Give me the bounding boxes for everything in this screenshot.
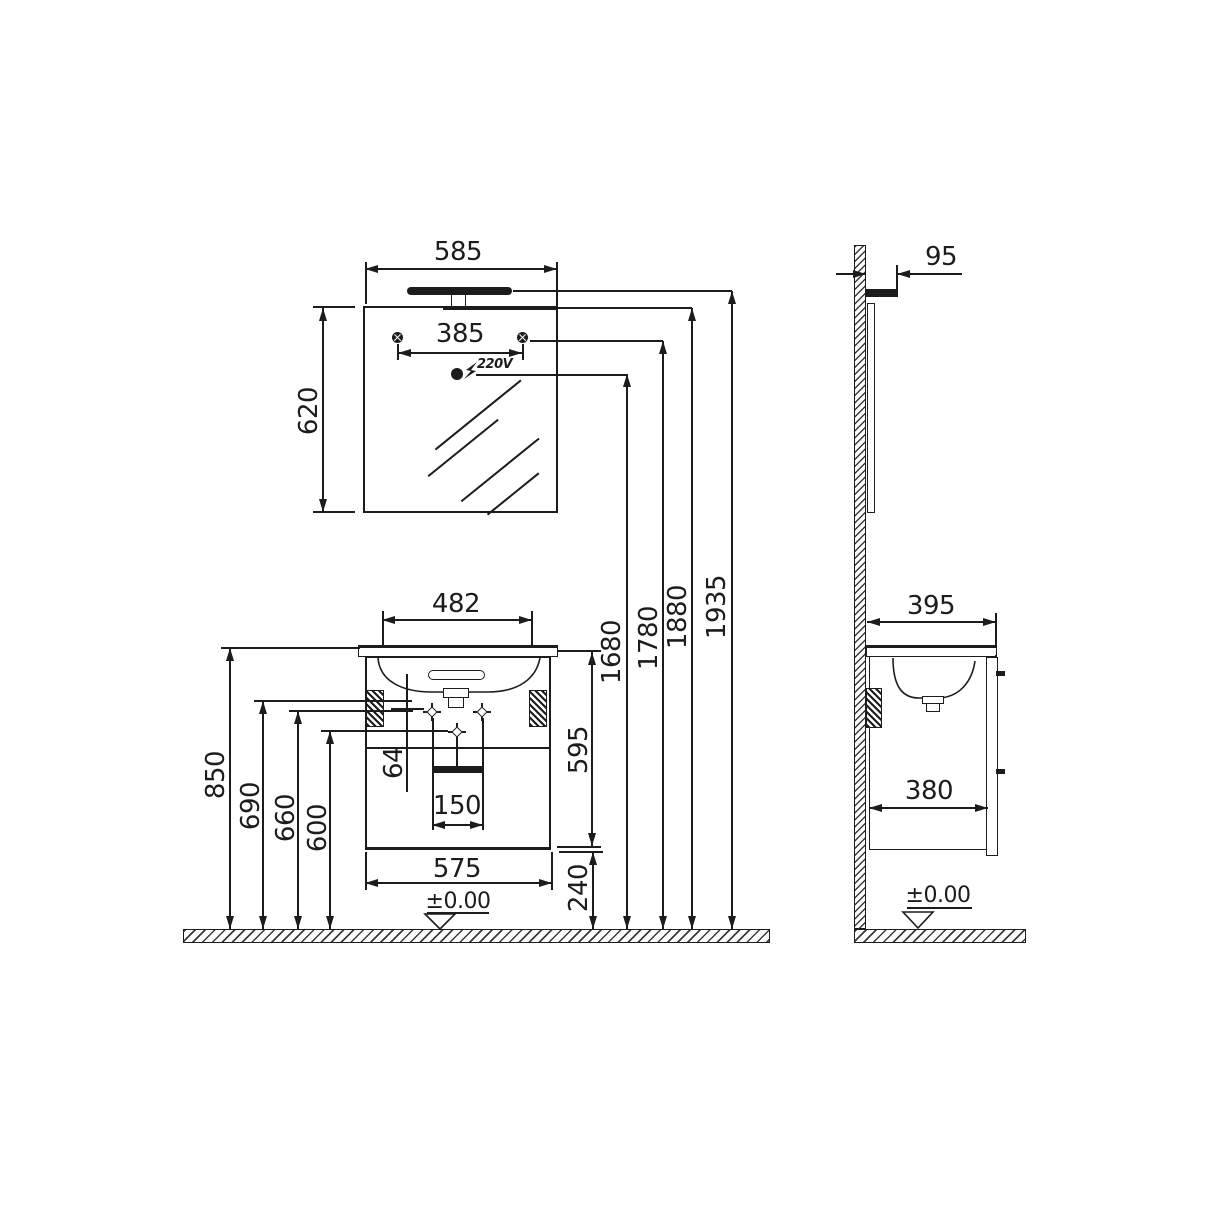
dim-arrow-icon [398, 349, 411, 357]
dim-label-bracket-height-1: 690 [238, 766, 264, 846]
dim-label-mirror-height: 620 [296, 371, 322, 451]
leader-line [321, 730, 448, 732]
wall-bracket-side [866, 688, 882, 728]
ext-line [551, 852, 553, 890]
ext-line [557, 650, 601, 652]
dim-arrow-icon [226, 916, 234, 929]
dim-arrow-icon [688, 916, 696, 929]
ext-line [397, 344, 399, 360]
dim-arrow-icon [588, 652, 596, 665]
dim-label-cabinet-height: 595 [566, 710, 592, 790]
dim-label-light-top-height: 1935 [704, 567, 730, 647]
floor [183, 929, 770, 943]
wall [854, 245, 866, 929]
mirror-screw-icon [517, 332, 528, 343]
dim-line-585 [365, 268, 557, 270]
ext-line [896, 265, 898, 290]
dim-line-385 [398, 352, 522, 354]
leader-line [289, 710, 413, 712]
dim-arrow-icon [588, 833, 596, 846]
leader-line-outlet [476, 374, 627, 376]
leader-line [221, 647, 360, 649]
dim-arrow-icon [432, 821, 445, 829]
dim-line-620 [322, 308, 324, 512]
datum-triangle-icon [424, 913, 456, 930]
dim-arrow-icon [382, 616, 395, 624]
dim-label-mirror-width: 585 [418, 239, 498, 265]
ext-line [313, 511, 355, 513]
dim-arrow-icon [728, 916, 736, 929]
ext-line [313, 306, 355, 308]
dim-label-mirror-top-height: 1880 [665, 577, 691, 657]
dim-label-hole-spacing: 385 [420, 321, 500, 347]
dim-arrow-icon [897, 270, 910, 278]
floor [854, 929, 1026, 943]
dim-label-bracket-height-2: 660 [273, 778, 299, 858]
dim-label-mount-offset: 64 [381, 723, 407, 803]
dim-label-handle-width: 150 [417, 793, 497, 819]
dim-arrow-icon [975, 804, 988, 812]
handle-side [996, 769, 1005, 774]
dim-arrow-icon [365, 879, 378, 887]
dim-arrow-icon [226, 648, 234, 661]
dim-arrow-icon [259, 701, 267, 714]
dim-arrow-icon [326, 916, 334, 929]
dim-arrow-icon [623, 374, 631, 387]
datum-triangle-icon [902, 911, 934, 929]
dim-arrow-icon [509, 349, 522, 357]
wall-bracket [529, 690, 547, 727]
dim-label-holes-height: 1780 [636, 598, 662, 678]
dim-arrow-icon [659, 341, 667, 354]
overflow-slot [428, 670, 485, 680]
drain-hole [448, 697, 464, 708]
datum-underline [907, 907, 972, 909]
power-outlet-icon [451, 368, 463, 380]
dim-label-countertop-depth: 395 [891, 593, 971, 619]
dim-arrow-icon [319, 308, 327, 321]
dim-arrow-icon [728, 291, 736, 304]
handle-side [996, 671, 1005, 676]
mirror-side [867, 303, 875, 513]
dim-arrow-icon [688, 308, 696, 321]
drain-side [926, 703, 940, 712]
ext-line [365, 852, 367, 890]
leader-line-holes [530, 340, 663, 342]
dim-arrow-icon [470, 821, 483, 829]
leader-line-light [513, 290, 732, 292]
outlet-voltage-label: 220V [477, 357, 527, 372]
ext-line [456, 738, 458, 768]
dim-arrow-icon [294, 916, 302, 929]
dim-arrow-icon [623, 916, 631, 929]
ext-line [556, 262, 558, 310]
dim-line-395 [867, 621, 996, 623]
leader-line [254, 700, 412, 702]
dim-arrow-icon [853, 270, 866, 278]
dim-label-cabinet-width: 575 [417, 856, 497, 882]
floor-datum-label: ±0.00 [418, 891, 498, 913]
dim-arrow-icon [326, 731, 334, 744]
dim-arrow-icon [365, 265, 378, 273]
dim-label-light-depth: 95 [901, 244, 981, 270]
dim-arrow-icon [659, 916, 667, 929]
ext-line [365, 262, 367, 304]
dim-line-482 [382, 619, 532, 621]
dim-label-countertop-height: 850 [203, 735, 229, 815]
leader-line-mirror-top [558, 307, 692, 309]
dim-line-380 [869, 807, 988, 809]
dim-line-575 [365, 882, 552, 884]
wall-bracket [366, 690, 384, 727]
light-fixture-side [866, 289, 898, 297]
vanity-technical-drawing: 585 385 220V 620 1680 1780 1880 1935 [0, 0, 1214, 1214]
ext-line [995, 613, 997, 647]
dim-arrow-icon [867, 618, 880, 626]
mirror-top-band [443, 306, 557, 310]
mirror-screw-icon [392, 332, 403, 343]
dim-label-floor-clearance: 240 [566, 848, 592, 928]
dim-label-outlet-height: 1680 [599, 612, 625, 692]
floor-datum-label: ±0.00 [898, 885, 978, 907]
dim-label-cabinet-depth: 380 [889, 778, 969, 804]
dim-label-mount-height: 600 [305, 788, 331, 868]
dim-arrow-icon [294, 711, 302, 724]
dim-arrow-icon [259, 916, 267, 929]
dim-arrow-icon [869, 804, 882, 812]
dim-label-basin-width: 482 [416, 591, 496, 617]
